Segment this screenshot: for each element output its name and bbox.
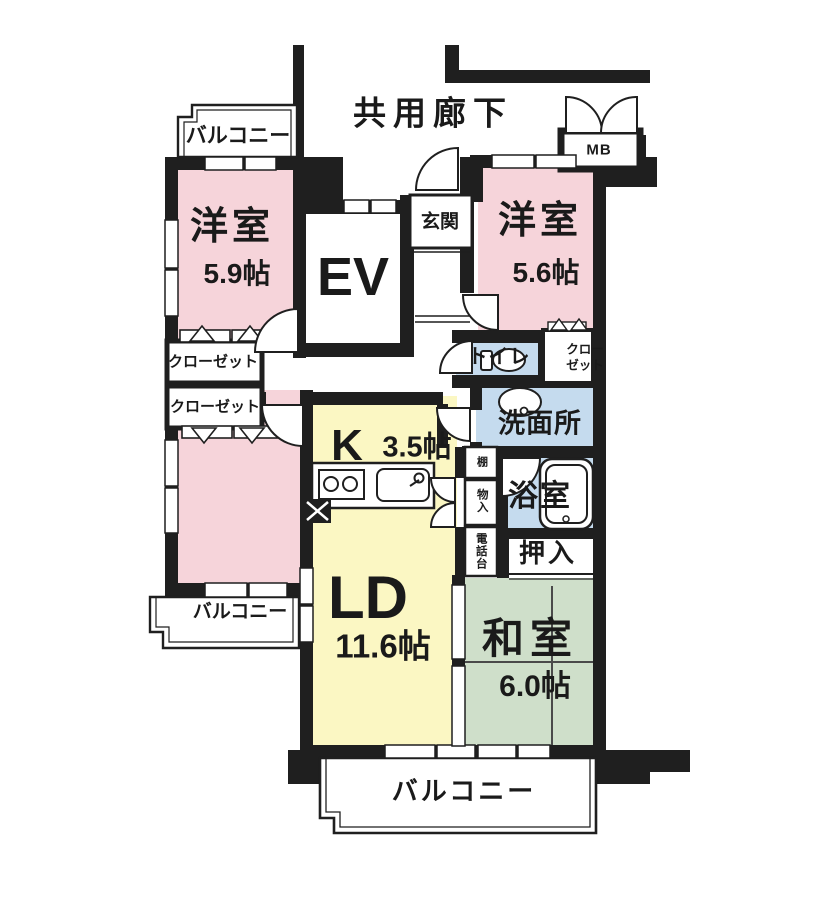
living-kitchen-floor [306,396,457,749]
closet-w-box [167,386,262,428]
balcony-bottom-outline [320,758,596,833]
storage-cabinet-box [465,480,497,525]
floor-plan-drawing [0,0,827,900]
toilet-door [440,341,472,373]
entrance-box [410,195,472,248]
floor-plan: 共用廊下 バルコニー 洋室 5.9帖 EV 玄関 洋室 5.6帖 MB クローゼ… [0,0,827,900]
elevator-shaft [306,214,400,343]
balcony-top-left-outline [178,105,297,157]
phone-stand-box [465,527,497,576]
fusuma-doors [452,585,465,746]
bedroom-ne-door [463,295,498,330]
toilet-tank-icon [481,351,492,370]
entrance-door [416,148,458,190]
meter-box-door-left [566,97,602,133]
toilet-bowl-icon [493,349,525,371]
storage-strip [465,447,497,576]
meter-box-door-right [601,97,637,133]
closet-nw-box [167,341,262,383]
shelf-box [465,447,497,478]
closet-ne-box [543,330,593,383]
balcony-bottom-left-outline [150,597,299,648]
